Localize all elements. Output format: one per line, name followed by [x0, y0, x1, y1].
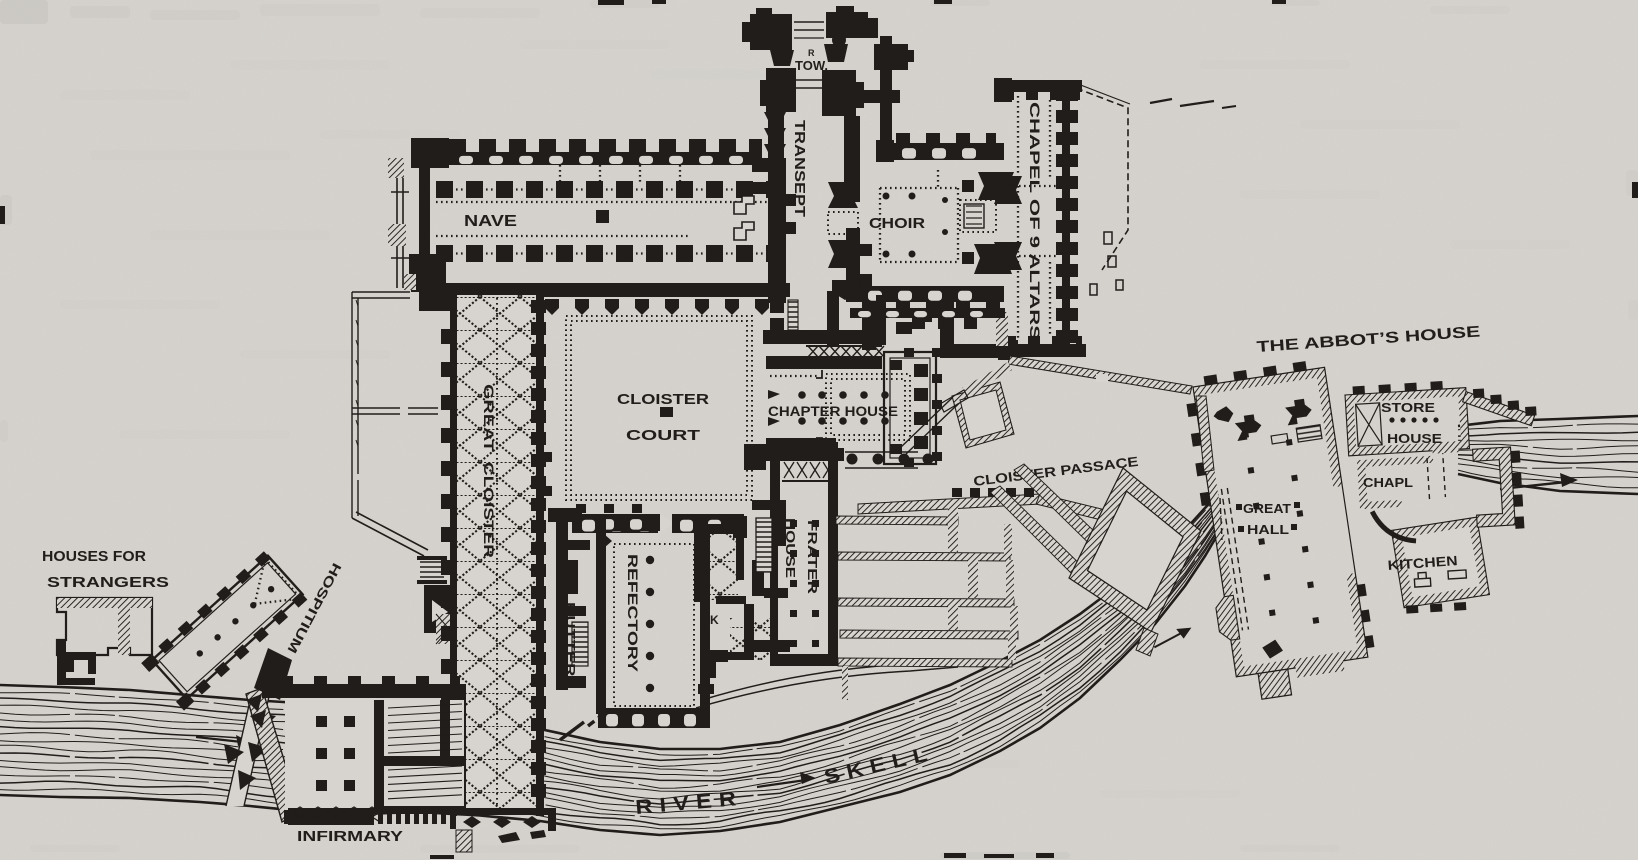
svg-text:CLOISTER: CLOISTER — [617, 391, 709, 408]
svg-text:FRATER: FRATER — [805, 520, 819, 594]
svg-text:STORE: STORE — [1381, 401, 1435, 415]
svg-text:GREAT: GREAT — [481, 384, 497, 453]
svg-text:NAVE: NAVE — [464, 213, 517, 230]
svg-text:CHAPEL OF 9 ALTARS: CHAPEL OF 9 ALTARS — [1027, 102, 1042, 340]
svg-text:HOUSE: HOUSE — [783, 518, 797, 578]
svg-text:HOUSES FOR: HOUSES FOR — [42, 549, 147, 565]
svg-text:HOUSE: HOUSE — [1387, 432, 1442, 446]
svg-text:CHAPTER HOUSE: CHAPTER HOUSE — [768, 404, 898, 419]
svg-text:BUTTERY: BUTTERY — [563, 602, 577, 689]
svg-text:STRANGERS: STRANGERS — [47, 575, 169, 591]
svg-text:R: R — [808, 48, 815, 58]
svg-text:REFECTORY: REFECTORY — [625, 554, 641, 673]
svg-text:CHOIR: CHOIR — [869, 215, 925, 232]
svg-text:CLOISTER: CLOISTER — [481, 462, 497, 558]
svg-text:CHAPL: CHAPL — [1363, 476, 1413, 490]
svg-text:HALL: HALL — [1247, 522, 1289, 537]
svg-text:K: K — [710, 613, 719, 627]
svg-text:INFIRMARY: INFIRMARY — [297, 828, 403, 845]
svg-text:TOW.: TOW. — [795, 58, 828, 73]
svg-text:COURT: COURT — [626, 427, 700, 444]
svg-text:GREAT: GREAT — [1243, 501, 1291, 516]
